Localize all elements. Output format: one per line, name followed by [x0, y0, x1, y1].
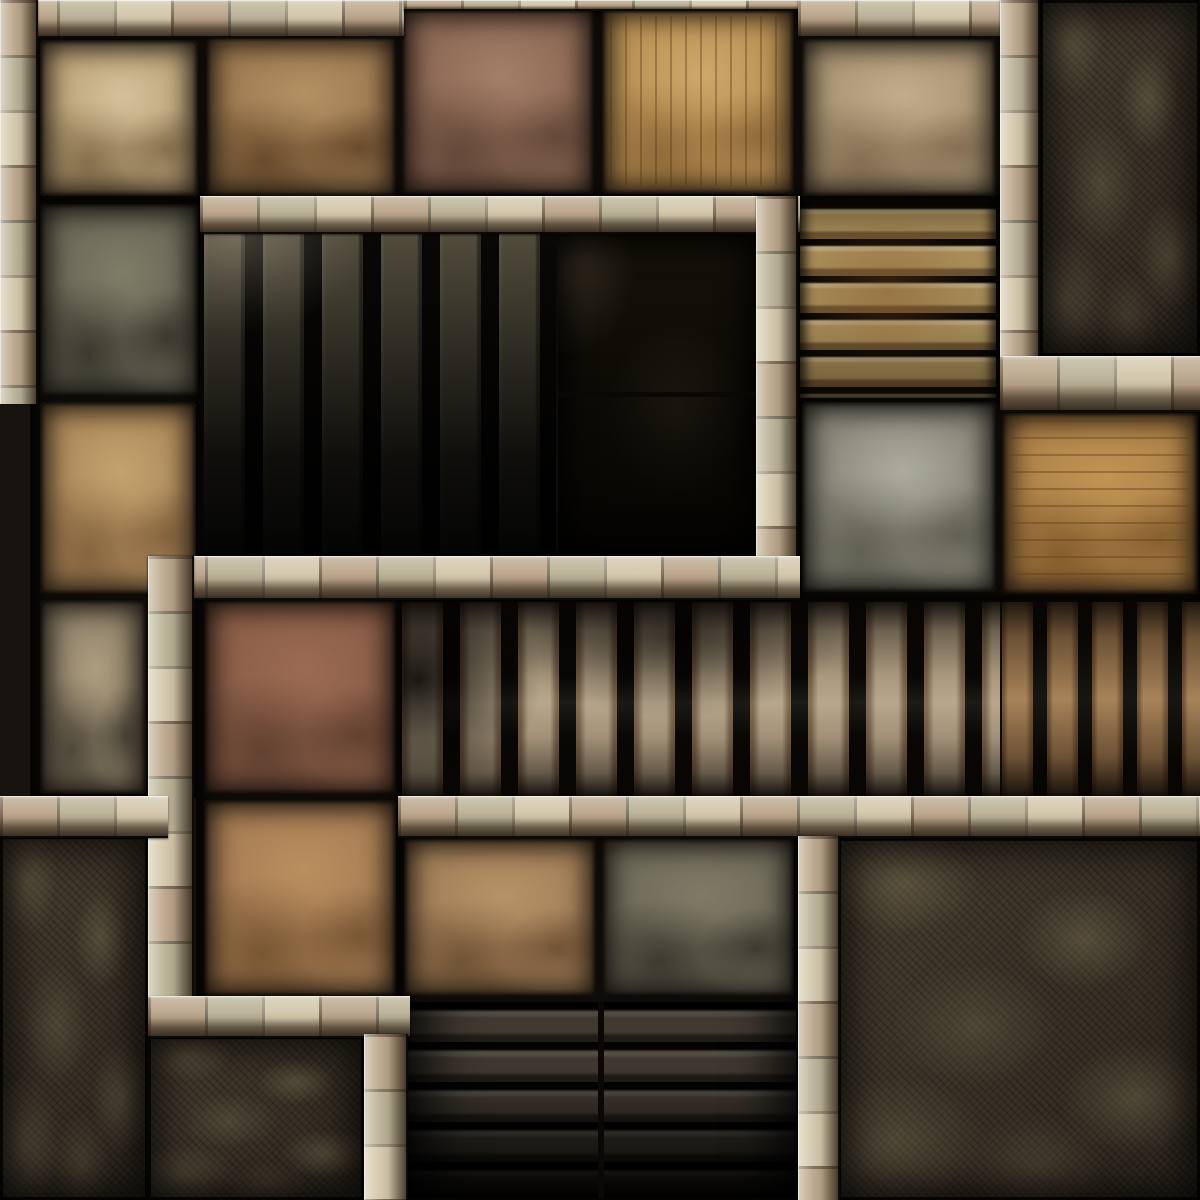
- wall-mid-vertical: [148, 556, 194, 1004]
- rock-bottom-left: [0, 836, 148, 1200]
- floor-tile-brown-carved: [204, 800, 396, 996]
- wall-pit-room-top: [200, 196, 800, 234]
- floor-tile-brown-veined: [206, 36, 396, 196]
- wall-pit-room-right: [756, 196, 798, 600]
- wall-top-center-thin: [404, 0, 798, 11]
- floor-tile-amber-striated: [1002, 412, 1198, 594]
- floor-tile-gray-south: [602, 838, 794, 996]
- floor-tile-graytan: [40, 600, 146, 794]
- floor-tile-slate: [40, 204, 198, 396]
- dungeon-map[interactable]: [0, 0, 1200, 1200]
- corridor-slat-stairs-right: [1002, 602, 1200, 796]
- wall-bottomleft-vertical: [364, 1034, 408, 1200]
- pit-tile-seam: [558, 392, 756, 397]
- rock-top-right: [1040, 0, 1200, 356]
- floor-tile-gold-striated: [602, 8, 794, 194]
- steps-topright: [800, 202, 996, 398]
- wall-south-long: [398, 796, 1200, 838]
- floor-tile-gray-veined: [802, 402, 996, 592]
- wall-bottomleft-horizontal: [148, 996, 410, 1038]
- rock-bottom-left-east: [148, 1036, 364, 1200]
- corridor-slat-stairs: [402, 602, 1000, 796]
- wall-topright-horizontal: [1000, 356, 1200, 412]
- wall-top-west: [0, 0, 404, 38]
- floor-tile-redbrown: [204, 600, 396, 794]
- wall-bottomright-vertical: [798, 836, 840, 1200]
- floor-tile-pale-tan: [802, 38, 996, 196]
- floor-tile-cream: [40, 40, 198, 196]
- floor-tile-tan-south: [404, 838, 596, 996]
- floor-tile-mauve: [402, 8, 594, 194]
- rock-bottom-right: [838, 838, 1200, 1200]
- wall-pit-room-bottom: [148, 556, 800, 600]
- wall-topright-vertical: [1000, 0, 1040, 360]
- pit-room-slat-stairs: [204, 234, 556, 554]
- wall-west-stub: [0, 796, 168, 838]
- steps-bottom-center-seam: [598, 1002, 604, 1198]
- wall-left-outer: [0, 0, 38, 404]
